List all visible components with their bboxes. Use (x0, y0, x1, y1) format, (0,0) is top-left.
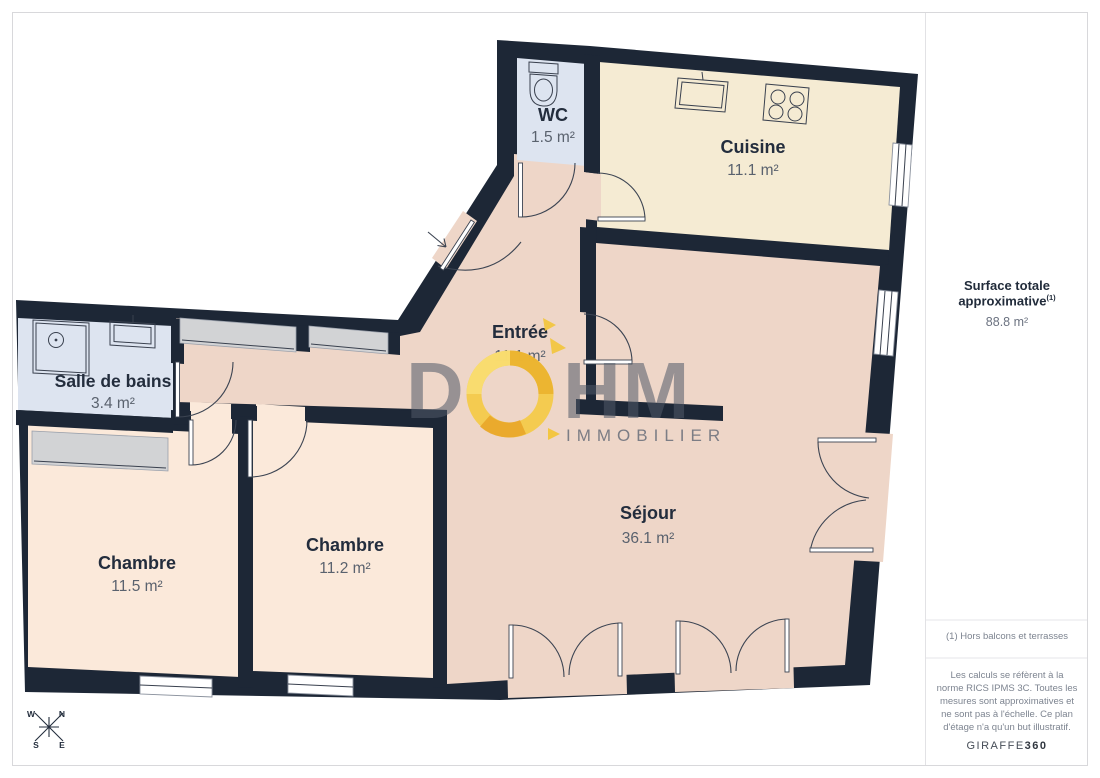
area-wc: 1.5 m² (531, 129, 575, 146)
compass-rose: W N S E (27, 709, 65, 750)
label-cuisine: Cuisine (720, 137, 785, 157)
doorway-chambre1 (190, 402, 232, 436)
watermark-letters-hm: HM (563, 346, 691, 435)
footnote-balconies: (1) Hors balcons et terrasses (926, 631, 1088, 642)
doorway-sejour-south-2 (674, 648, 794, 692)
compass-east: E (59, 740, 65, 750)
floorplan-page: WC 1.5 m² Cuisine 11.1 m² Entrée 11.1 m²… (0, 0, 1100, 778)
label-wc: WC (538, 105, 568, 125)
surface-total-label: Surface totale approximative(1) (926, 278, 1088, 308)
area-cuisine: 11.1 m² (727, 162, 778, 179)
area-salle-de-bains: 3.4 m² (91, 395, 135, 412)
entrance-arrow-icon (428, 232, 446, 247)
label-chambre1: Chambre (98, 553, 176, 573)
giraffe360-logo: GIRAFFE360 (926, 740, 1088, 752)
surface-footnote-ref: (1) (1046, 293, 1055, 302)
room-entree-floor (176, 154, 586, 414)
compass-north: N (59, 709, 65, 719)
watermark-tagline: IMMOBILIER (566, 426, 726, 445)
doorway-sejour-south-1 (507, 654, 627, 698)
surface-total-text: Surface totale approximative (958, 278, 1050, 308)
label-chambre2: Chambre (306, 535, 384, 555)
area-chambre1: 11.5 m² (111, 578, 162, 595)
label-salle-de-bains: Salle de bains (55, 371, 172, 391)
giraffe360-logo-text: GIRAFFE (966, 740, 1024, 752)
surface-total-block: Surface totale approximative(1) 88.8 m² (926, 278, 1088, 329)
compass-west: W (27, 709, 36, 719)
label-entree: Entrée (492, 322, 548, 342)
window-cuisine (889, 143, 912, 207)
compass-center-dot (47, 725, 50, 728)
disclaimer-text: Les calculs se réfèrent à la norme RICS … (936, 669, 1078, 734)
label-sejour: Séjour (620, 503, 676, 523)
giraffe360-logo-360: 360 (1025, 740, 1048, 752)
area-chambre2: 11.2 m² (319, 560, 370, 577)
watermark-letter-d: D (406, 346, 464, 435)
compass-south: S (33, 740, 39, 750)
doorway-chambre2 (256, 404, 306, 430)
area-sejour: 36.1 m² (622, 530, 675, 547)
floorplan-canvas: WC 1.5 m² Cuisine 11.1 m² Entrée 11.1 m²… (0, 0, 1100, 778)
doorway-cuisine (584, 172, 601, 221)
surface-total-value: 88.8 m² (926, 315, 1088, 329)
